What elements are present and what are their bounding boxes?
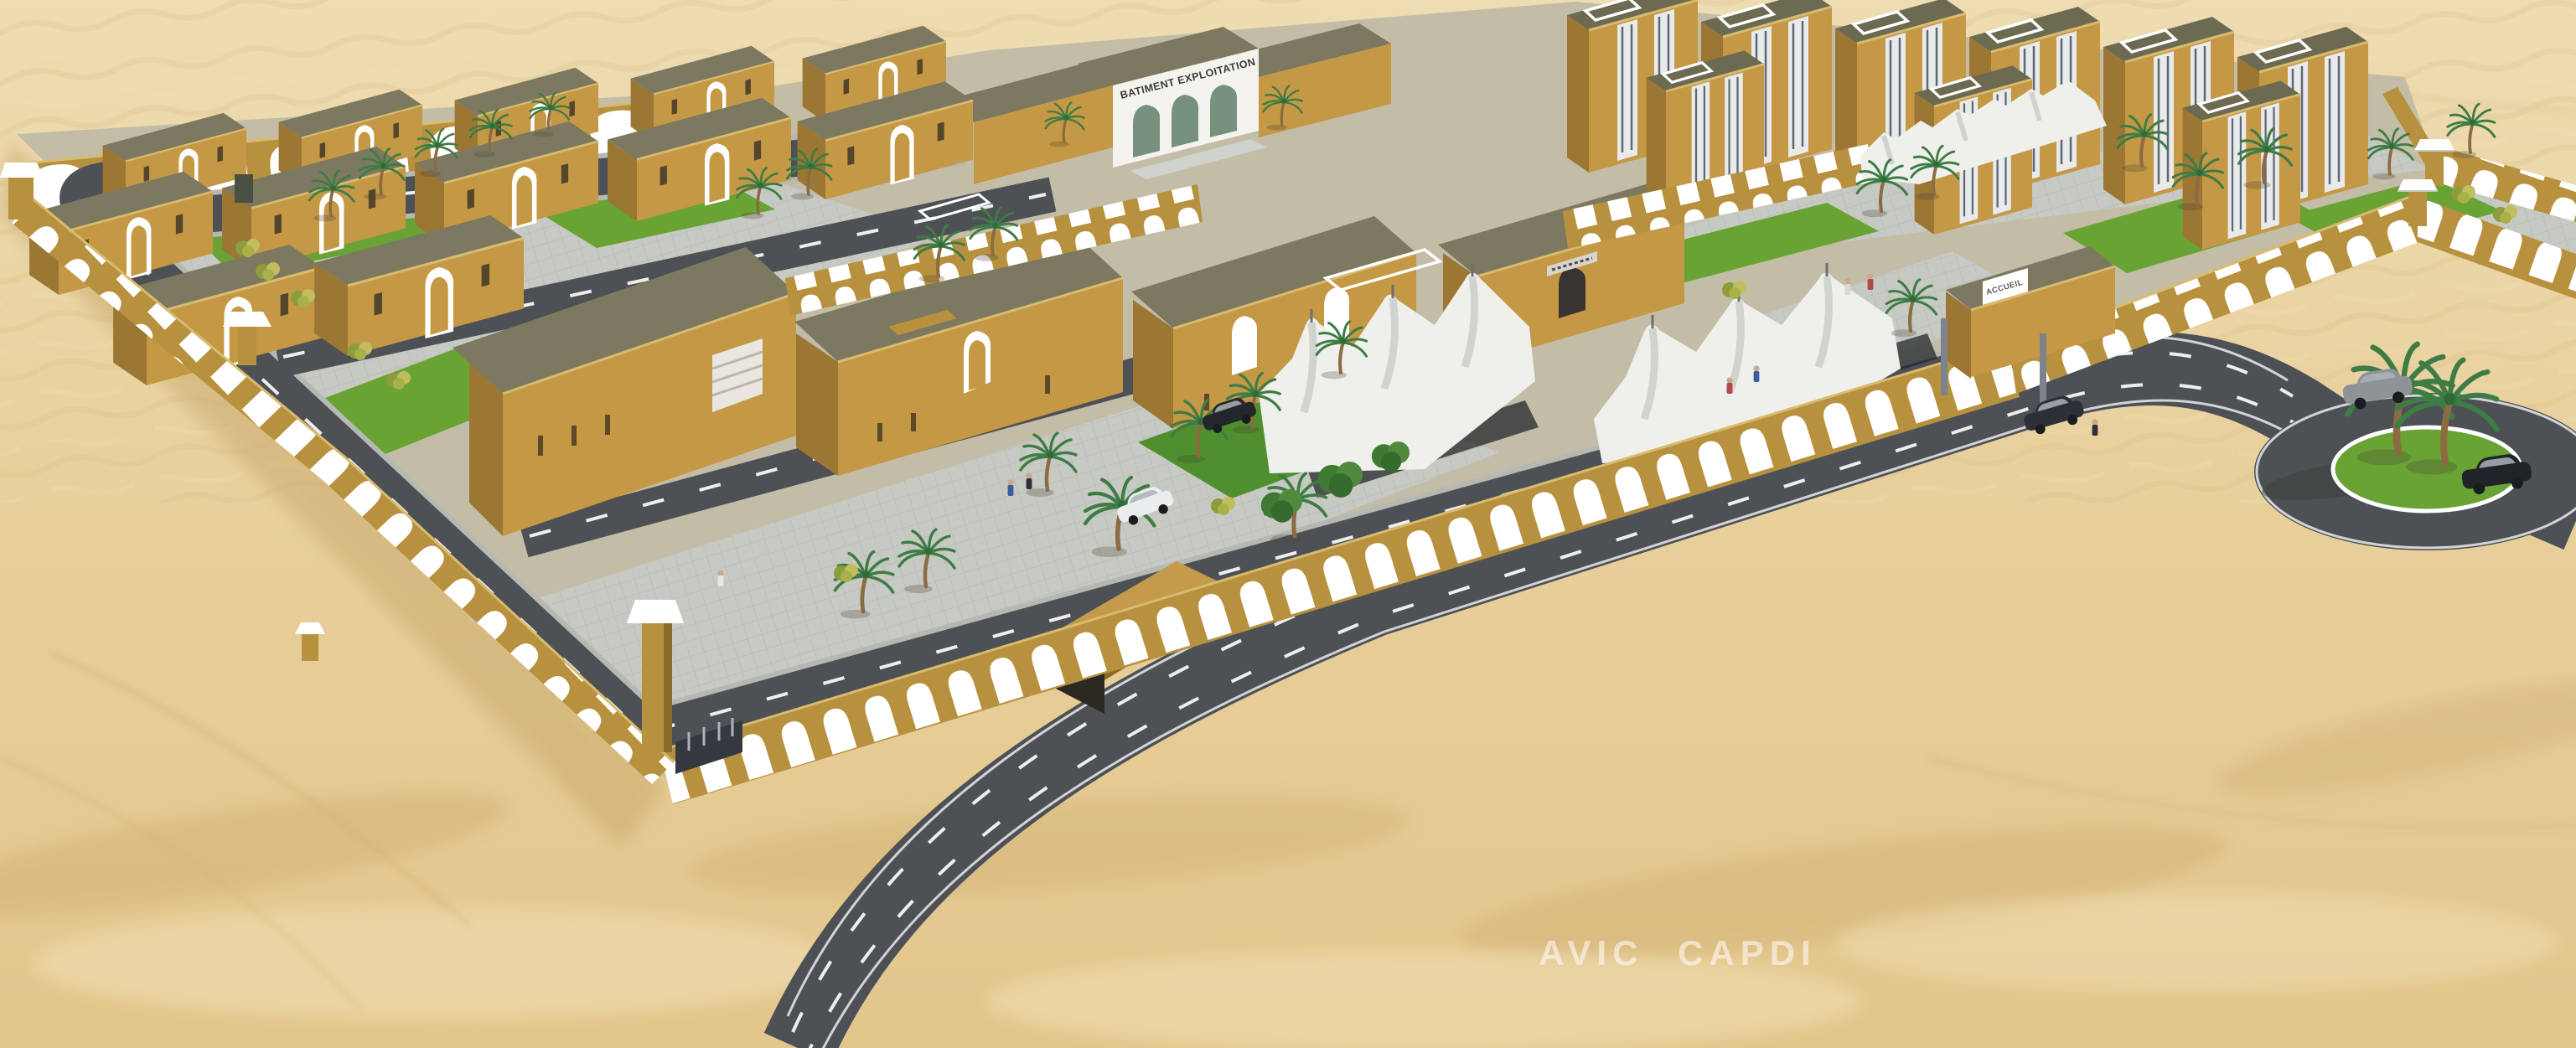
entrance-arch-2 — [1172, 95, 1198, 147]
pedestrian — [1726, 377, 1732, 394]
entrance-arch-1 — [1133, 105, 1160, 157]
pedestrian — [1026, 472, 1032, 489]
pedestrian — [1867, 273, 1873, 290]
dark-entrance-arch — [1559, 267, 1585, 318]
rendered-scene: BATIMENT EXPLOITATION — [0, 0, 2576, 1048]
gate-post-right — [2040, 333, 2046, 407]
pedestrian — [1753, 365, 1759, 382]
pedestrian — [1844, 278, 1850, 295]
pedestrian — [717, 570, 723, 586]
scene-canvas: BATIMENT EXPLOITATION — [0, 0, 2576, 1048]
entrance-arch-3 — [1210, 85, 1237, 137]
pedestrian — [1007, 479, 1013, 496]
watermark-text: AVIC CAPDI — [1539, 933, 1817, 973]
pedestrian — [2092, 419, 2098, 436]
gate-post-left — [1941, 318, 1948, 395]
